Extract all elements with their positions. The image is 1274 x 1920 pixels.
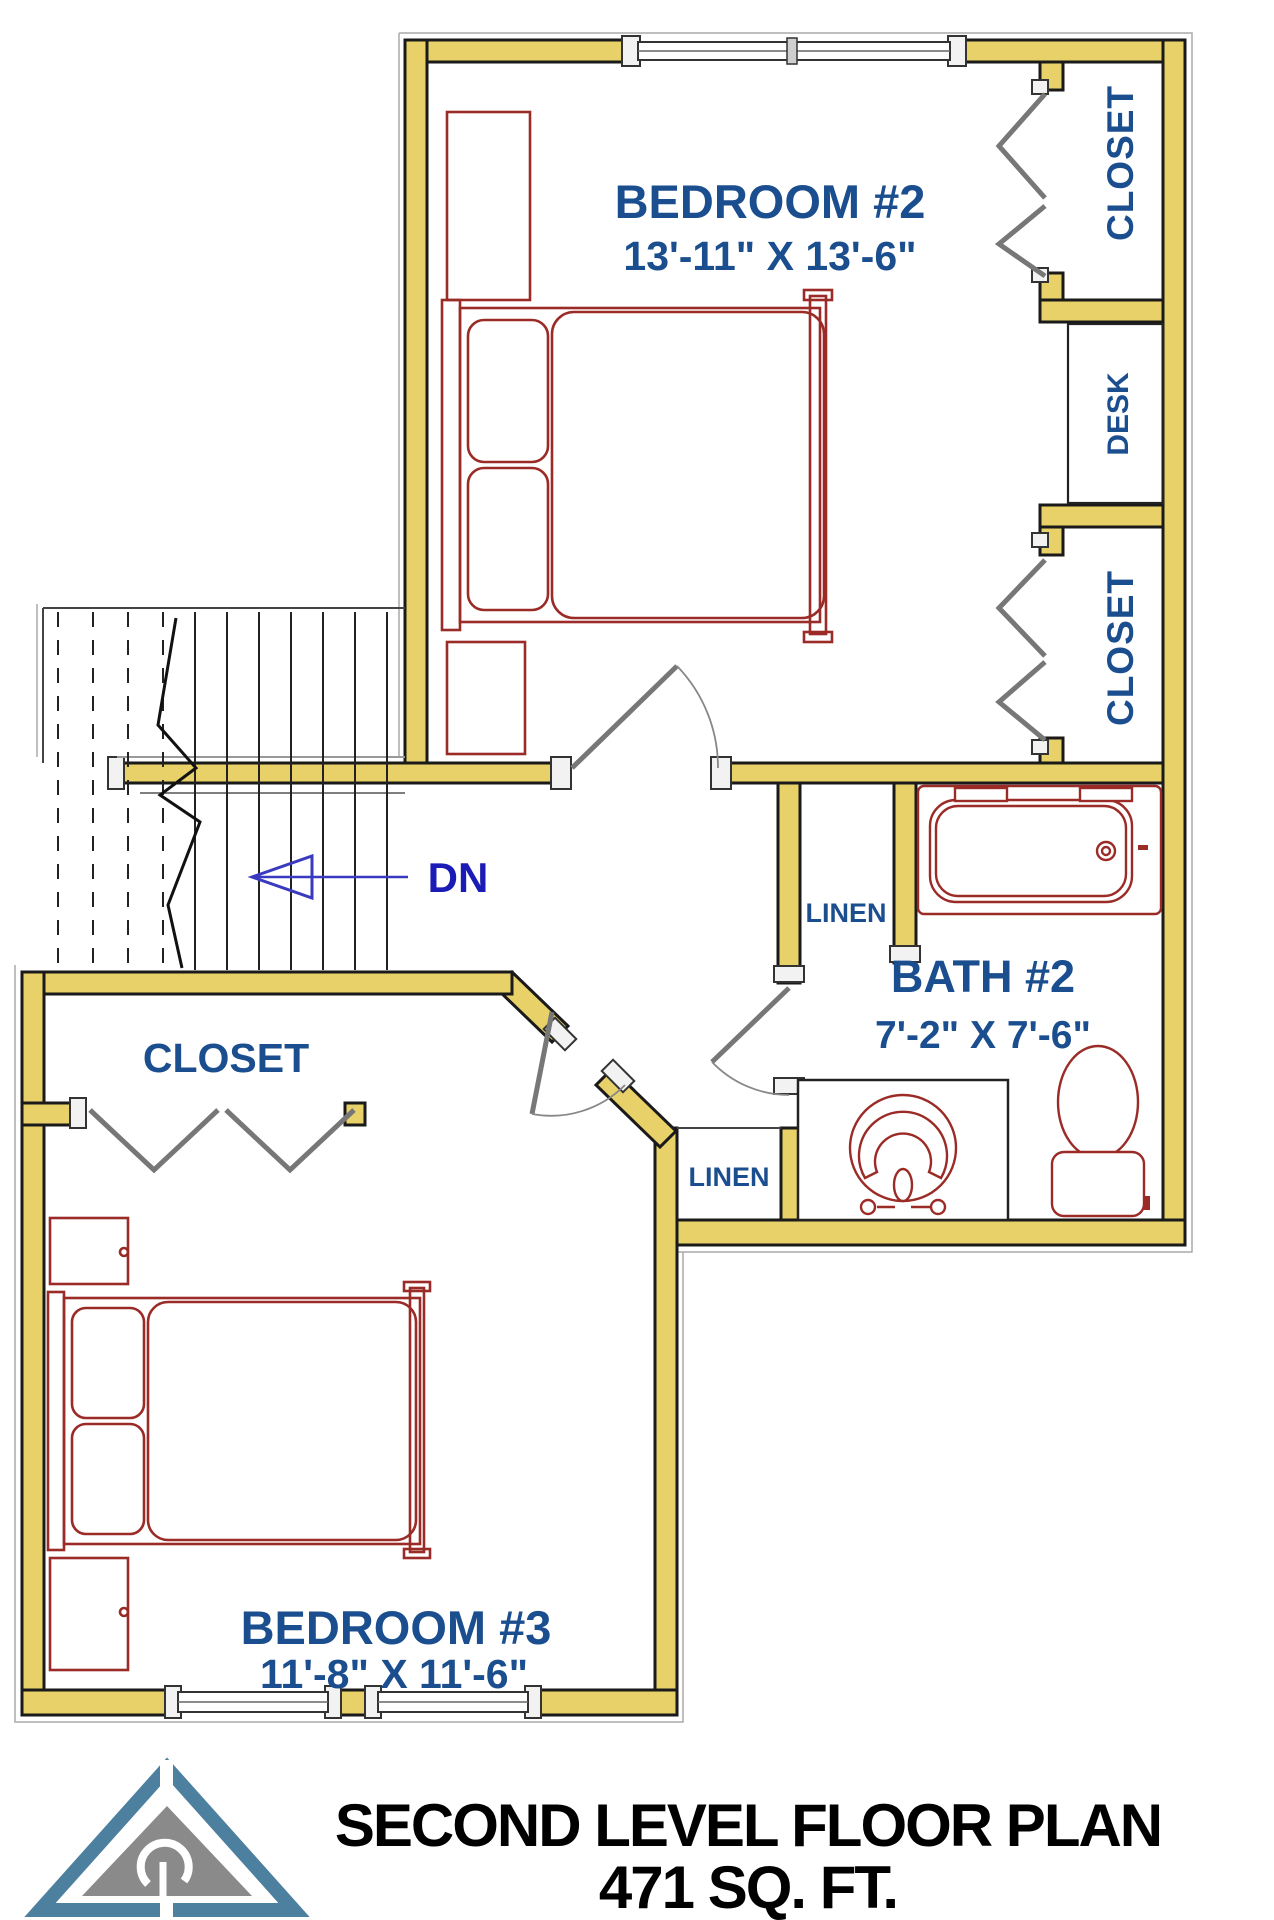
bedroom2-dresser-bottom	[447, 642, 525, 754]
closet3-bifold-door	[226, 1110, 354, 1170]
sink-vanity-icon	[798, 1080, 1008, 1220]
toilet-icon	[1052, 1046, 1150, 1216]
closet2-label: CLOSET	[1100, 570, 1141, 726]
bedroom2-door-leaf	[572, 666, 677, 768]
desk-label: DESK	[1102, 372, 1135, 456]
closet1-label: CLOSET	[1100, 85, 1141, 241]
closet3-label: CLOSET	[143, 1035, 309, 1081]
room-label-bedroom3: BEDROOM #3	[241, 1601, 552, 1654]
floor-plan-drawing: BEDROOM #2 13'-11" X 13'-6" CLOSET DESK …	[0, 0, 1274, 1920]
closet3-bifold-door	[90, 1110, 218, 1170]
floor-plan-page: BEDROOM #2 13'-11" X 13'-6" CLOSET DESK …	[0, 0, 1274, 1920]
bedroom2-dresser-top	[447, 112, 530, 300]
bath2-door-leaf	[712, 988, 789, 1062]
room-label-bath2: BATH #2	[891, 951, 1075, 1002]
closet2-bifold-door	[999, 560, 1045, 656]
bedroom3-nightstand-bottom	[50, 1558, 128, 1670]
title-block: SECOND LEVEL FLOOR PLAN 471 SQ. FT.	[40, 1760, 1161, 1920]
room-dims-bedroom2: 13'-11" X 13'-6"	[623, 233, 916, 279]
company-logo	[40, 1760, 294, 1918]
closet1-bifold-door	[999, 206, 1045, 276]
bedroom3-bed-icon	[48, 1282, 430, 1558]
room-label-bedroom2: BEDROOM #2	[615, 175, 926, 228]
room-dims-bedroom3: 11'-8" X 11'-6"	[260, 1651, 528, 1697]
bedroom2-bed-icon	[442, 290, 832, 642]
bathtub-icon	[918, 786, 1161, 914]
room-dims-bath2: 7'-2" X 7'-6"	[875, 1014, 1091, 1057]
bath-fixtures	[798, 786, 1161, 1220]
closet1-bifold-door	[999, 94, 1045, 198]
plan-area: 471 SQ. FT.	[599, 1854, 897, 1920]
plan-title: SECOND LEVEL FLOOR PLAN	[335, 1792, 1161, 1859]
bedroom3-nightstand-top	[50, 1218, 128, 1284]
stairs-dn-label: DN	[428, 854, 489, 901]
stairs	[43, 608, 408, 970]
linen1-label: LINEN	[806, 898, 887, 928]
closet2-bifold-door	[999, 662, 1045, 740]
linen2-label: LINEN	[689, 1162, 770, 1192]
